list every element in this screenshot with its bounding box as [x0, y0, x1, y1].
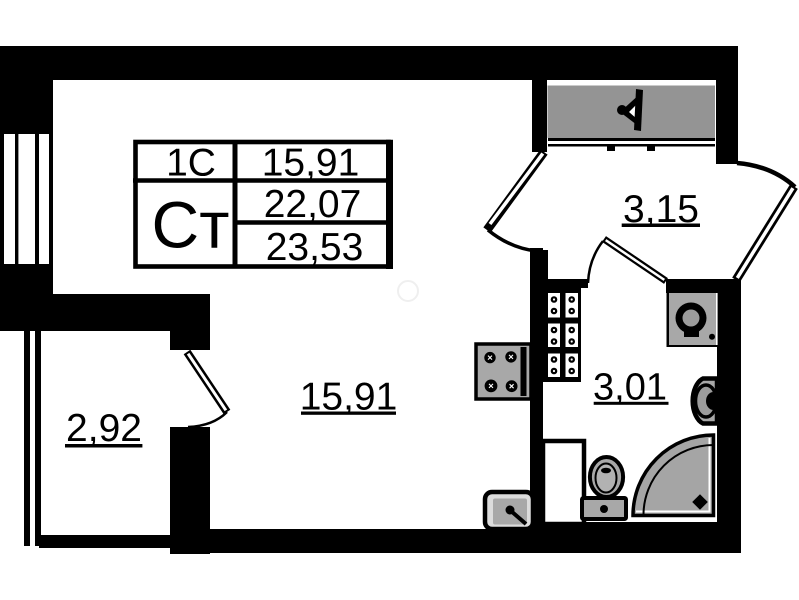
svg-text:22,07: 22,07 — [264, 183, 362, 226]
svg-text:15,91: 15,91 — [262, 142, 360, 185]
svg-text:1С: 1С — [166, 142, 216, 185]
svg-text:2,92: 2,92 — [66, 407, 142, 450]
svg-text:23,53: 23,53 — [266, 226, 364, 269]
svg-text:Ст: Ст — [152, 188, 230, 262]
